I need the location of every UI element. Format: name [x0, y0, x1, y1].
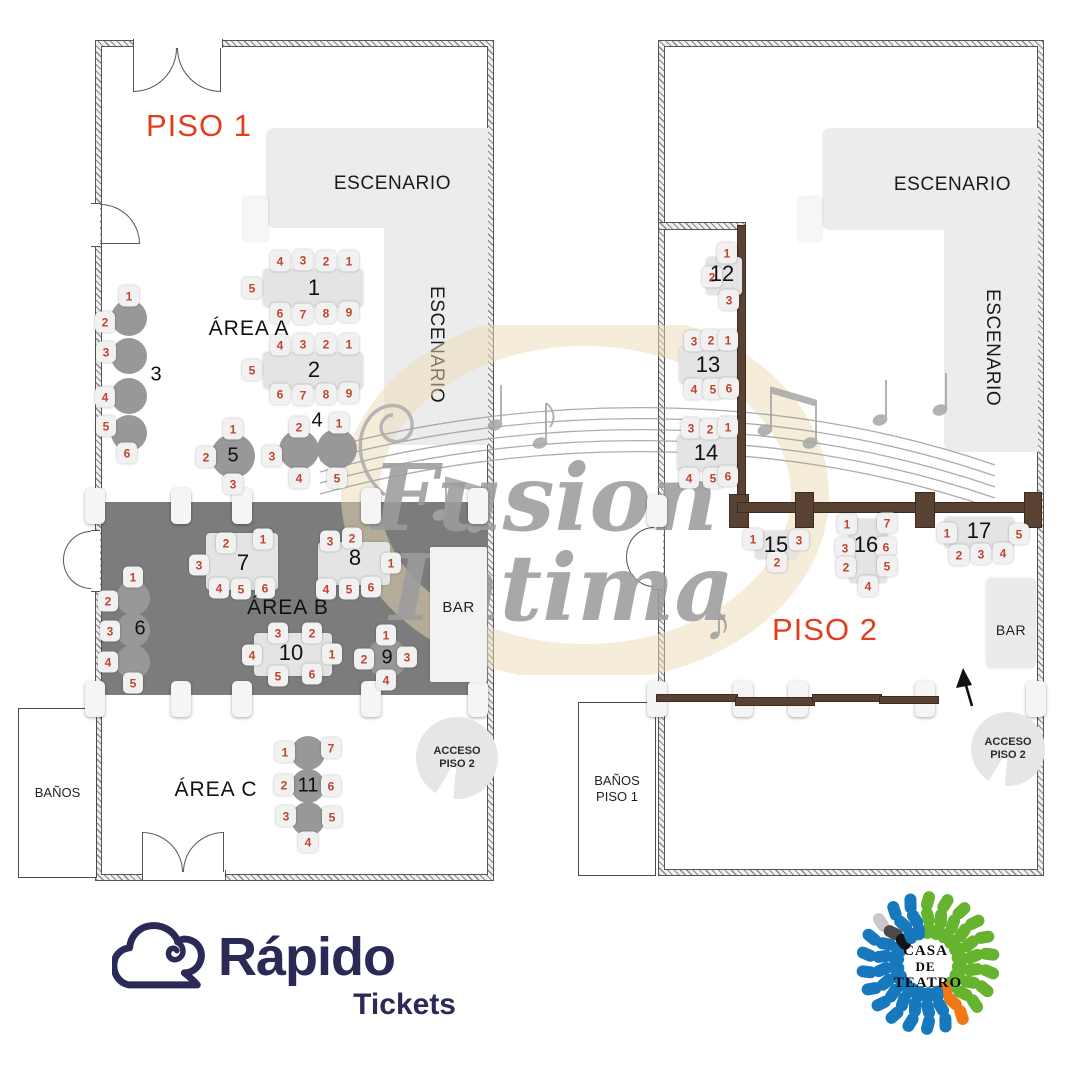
- seat-table3-3[interactable]: 3: [96, 342, 116, 363]
- seat-table7-3[interactable]: 3: [189, 555, 209, 576]
- table-11-round[interactable]: [291, 736, 325, 770]
- column-pillar: [647, 495, 667, 527]
- seat-table9-1[interactable]: 1: [376, 625, 396, 646]
- door-leaf: [133, 48, 134, 92]
- seat-table3-6[interactable]: 6: [117, 443, 137, 464]
- table-10-number: 10: [279, 640, 303, 666]
- column-pillar: [232, 681, 252, 717]
- seat-table14-1[interactable]: 1: [718, 417, 738, 438]
- table-1-number: 1: [308, 275, 320, 301]
- balcony-railing: [737, 502, 1042, 513]
- bar-label-piso2: BAR: [986, 622, 1036, 638]
- seat-table11-2[interactable]: 2: [274, 775, 294, 796]
- seat-table1-5[interactable]: 5: [242, 278, 262, 299]
- seat-table5-3[interactable]: 3: [223, 474, 243, 495]
- stage-label-piso2: ESCENARIO: [860, 174, 1045, 196]
- balcony-railing: [735, 697, 815, 706]
- seat-table4-4[interactable]: 4: [289, 468, 309, 489]
- seat-table7-1[interactable]: 1: [253, 529, 273, 550]
- seat-table17-3[interactable]: 3: [971, 544, 991, 565]
- seat-table2-2[interactable]: 2: [316, 334, 336, 355]
- seat-table2-9[interactable]: 9: [339, 383, 359, 404]
- seat-table8-6[interactable]: 6: [361, 577, 381, 598]
- seat-table7-2[interactable]: 2: [216, 533, 236, 554]
- access-label: ACCESO: [433, 745, 480, 758]
- seat-table11-6[interactable]: 6: [321, 776, 341, 797]
- seat-table4-2[interactable]: 2: [289, 417, 309, 438]
- restroom-piso2-plan: BAÑOSPISO 1: [578, 702, 656, 876]
- table-14-number: 14: [694, 440, 718, 466]
- seat-table1-8[interactable]: 8: [316, 303, 336, 324]
- railing-post: [1024, 492, 1042, 528]
- restroom-label-piso1: BAÑOS: [35, 785, 81, 801]
- seat-table13-4[interactable]: 4: [684, 379, 704, 400]
- access-label: ACCESO: [984, 736, 1031, 749]
- seat-table4-5[interactable]: 5: [327, 468, 347, 489]
- seat-table1-3[interactable]: 3: [293, 250, 313, 271]
- seat-table2-6[interactable]: 6: [270, 384, 290, 405]
- stage-label-piso1-vertical: ESCENARIO: [425, 280, 447, 410]
- casa-de-teatro-logo: CASA DE TEATRO: [851, 886, 1005, 1045]
- seat-map-canvas: ESCENARIO ESCENARIO BAR BAÑOS ACCESO PIS…: [0, 0, 1080, 1080]
- door-arc: [63, 531, 91, 560]
- seat-table14-2[interactable]: 2: [700, 419, 720, 440]
- seat-table17-2[interactable]: 2: [949, 545, 969, 566]
- door-opening: [654, 526, 663, 590]
- seat-table13-6[interactable]: 6: [719, 378, 739, 399]
- stage-label-piso2-vertical: ESCENARIO: [981, 283, 1003, 413]
- bar-label-piso1: BAR: [430, 599, 487, 616]
- table-4-number: 4: [311, 410, 322, 433]
- door-arc: [626, 557, 654, 587]
- seat-table3-5[interactable]: 5: [96, 416, 116, 437]
- seat-table17-4[interactable]: 4: [993, 543, 1013, 564]
- seat-table16-6[interactable]: 6: [876, 537, 896, 558]
- door-leaf: [100, 243, 140, 244]
- door-leaf: [142, 832, 143, 872]
- stairs-access-piso1: ACCESO PISO 2: [416, 717, 498, 799]
- column-pillar: [171, 681, 191, 717]
- seat-table9-2[interactable]: 2: [354, 649, 374, 670]
- door-opening: [133, 39, 223, 48]
- seat-table11-4[interactable]: 4: [298, 832, 318, 853]
- seat-table1-2[interactable]: 2: [316, 251, 336, 272]
- rapido-subtitle: Tickets: [218, 988, 456, 1022]
- door-opening: [91, 203, 100, 247]
- seat-table11-5[interactable]: 5: [322, 807, 342, 828]
- table-11-number: 11: [298, 775, 319, 798]
- table-3-round[interactable]: [111, 338, 147, 374]
- seat-table17-5[interactable]: 5: [1009, 524, 1029, 545]
- seat-table11-1[interactable]: 1: [275, 742, 295, 763]
- area-b-label: ÁREA B: [228, 596, 348, 620]
- table-7-number: 7: [237, 550, 249, 576]
- column-pillar: [468, 681, 488, 717]
- seat-table11-3[interactable]: 3: [276, 806, 296, 827]
- railing-post: [915, 492, 935, 528]
- seat-table1-1[interactable]: 1: [339, 251, 359, 272]
- railing-post: [795, 492, 814, 528]
- table-2-number: 2: [308, 357, 320, 383]
- seat-table17-1[interactable]: 1: [937, 523, 957, 544]
- seat-table16-5[interactable]: 5: [877, 556, 897, 577]
- seat-table6-2[interactable]: 2: [98, 591, 118, 612]
- seat-table8-3[interactable]: 3: [320, 531, 340, 552]
- seat-table16-4[interactable]: 4: [858, 576, 878, 597]
- balcony-railing: [879, 696, 939, 704]
- area-a-label: ÁREA A: [189, 317, 309, 341]
- door-arc: [63, 560, 91, 589]
- seat-table8-1[interactable]: 1: [381, 553, 401, 574]
- seat-table6-5[interactable]: 5: [123, 673, 143, 694]
- table-3-number: 3: [150, 364, 161, 387]
- seat-table1-9[interactable]: 9: [339, 302, 359, 323]
- table-4-round[interactable]: [317, 429, 357, 469]
- table-9-number: 9: [381, 647, 392, 670]
- seat-table6-1[interactable]: 1: [123, 567, 143, 588]
- column-pillar: [85, 681, 105, 717]
- seat-table6-3[interactable]: 3: [100, 621, 120, 642]
- seat-table15-3[interactable]: 3: [789, 530, 809, 551]
- seat-table11-7[interactable]: 7: [321, 738, 341, 759]
- table-8-number: 8: [349, 545, 361, 571]
- table-17-number: 17: [967, 518, 991, 544]
- balcony-railing: [812, 694, 882, 702]
- stage-step: [243, 197, 268, 241]
- seat-table5-2[interactable]: 2: [196, 447, 216, 468]
- table-12-number: 12: [710, 261, 734, 287]
- stage-label-piso1: ESCENARIO: [300, 173, 485, 195]
- access-label: PISO 2: [439, 758, 474, 771]
- seat-table3-1[interactable]: 1: [119, 286, 139, 307]
- column-pillar: [361, 488, 381, 524]
- rapido-tickets-logo: Rápido Tickets: [112, 920, 214, 1001]
- restroom-label: BAÑOSPISO 1: [594, 773, 640, 806]
- seat-table9-4[interactable]: 4: [376, 670, 396, 691]
- seat-table2-1[interactable]: 1: [339, 334, 359, 355]
- stairs-access-piso2: ACCESO PISO 2: [971, 712, 1045, 786]
- seat-table2-8[interactable]: 8: [316, 384, 336, 405]
- column-pillar: [468, 488, 488, 524]
- column-pillar: [171, 488, 191, 524]
- piso2-title: PISO 2: [772, 612, 878, 648]
- area-c-label: ÁREA C: [156, 778, 276, 802]
- cloud-icon: [112, 920, 214, 996]
- restroom-piso1: BAÑOS: [18, 708, 97, 878]
- table-13-number: 13: [696, 352, 720, 378]
- table-16-number: 16: [854, 532, 878, 558]
- seat-table14-3[interactable]: 3: [681, 418, 701, 439]
- table-6-number: 6: [134, 618, 145, 641]
- table-15-number: 15: [764, 532, 788, 558]
- table-3-round[interactable]: [111, 378, 147, 414]
- seat-table12-3[interactable]: 3: [719, 290, 739, 311]
- interior-wall: [658, 222, 746, 230]
- seat-table2-7[interactable]: 7: [293, 385, 313, 406]
- seat-table16-3[interactable]: 3: [835, 538, 855, 559]
- door-arc: [626, 527, 654, 557]
- seat-table4-1[interactable]: 1: [329, 413, 349, 434]
- seat-table7-4[interactable]: 4: [209, 578, 229, 599]
- seat-table10-2[interactable]: 2: [302, 623, 322, 644]
- stage-step: [798, 197, 822, 241]
- balcony-railing: [656, 694, 738, 702]
- seat-table1-4[interactable]: 4: [270, 251, 290, 272]
- seat-table5-1[interactable]: 1: [223, 419, 243, 440]
- seat-table9-3[interactable]: 3: [397, 647, 417, 668]
- door-leaf: [220, 48, 221, 92]
- access-label: PISO 2: [990, 749, 1025, 762]
- seat-table10-4[interactable]: 4: [242, 645, 262, 666]
- seat-table3-4[interactable]: 4: [95, 387, 115, 408]
- column-pillar: [85, 488, 105, 524]
- rapido-title: Rápido: [218, 926, 395, 988]
- seat-table14-6[interactable]: 6: [718, 466, 738, 487]
- seat-table13-1[interactable]: 1: [718, 330, 738, 351]
- casa-logo-icon: CASA DE TEATRO: [851, 886, 1005, 1040]
- seat-table16-2[interactable]: 2: [836, 557, 856, 578]
- column-pillar: [1026, 681, 1046, 717]
- piso1-title: PISO 1: [146, 108, 252, 144]
- seat-table15-1[interactable]: 1: [743, 529, 763, 550]
- seat-table10-6[interactable]: 6: [302, 664, 322, 685]
- table-5-number: 5: [227, 445, 238, 468]
- seat-table2-5[interactable]: 5: [242, 360, 262, 381]
- seat-table6-4[interactable]: 4: [98, 652, 118, 673]
- seat-table10-1[interactable]: 1: [322, 644, 342, 665]
- seat-table4-3[interactable]: 3: [262, 446, 282, 467]
- door-opening: [91, 530, 100, 592]
- seat-table14-4[interactable]: 4: [679, 468, 699, 489]
- direction-arrow-icon: [952, 666, 982, 710]
- seat-table10-5[interactable]: 5: [268, 666, 288, 687]
- seat-table16-7[interactable]: 7: [877, 513, 897, 534]
- seat-table3-2[interactable]: 2: [95, 312, 115, 333]
- door-leaf: [223, 832, 224, 872]
